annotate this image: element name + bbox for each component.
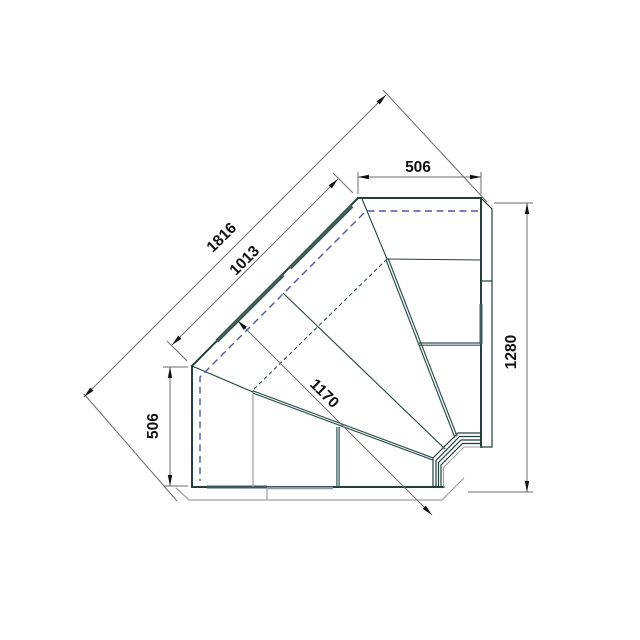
arrowhead	[525, 481, 529, 492]
fan-line-left	[192, 366, 253, 392]
fan-line-bisector	[283, 293, 445, 449]
extension-line	[333, 173, 353, 193]
right-end-panel	[481, 198, 492, 447]
extension-line	[167, 341, 187, 361]
dim-label-top-width: 506	[405, 159, 431, 176]
shelf-line-horizontal	[387, 259, 481, 260]
arrowhead	[470, 175, 481, 179]
internal-shelf-lines	[192, 199, 481, 487]
technical-drawing: 506 1280 506 1816	[0, 0, 640, 640]
dimension-top-width: 506	[358, 159, 481, 194]
arrowhead	[168, 367, 172, 378]
dim-label-front-diagonal: 1013	[227, 242, 264, 279]
dimension-left-depth: 506	[145, 367, 188, 486]
dim-label-overall-diagonal: 1816	[204, 219, 241, 256]
shelf-line-diagonal-hidden	[253, 259, 387, 390]
deck-front-double-lines	[253, 258, 481, 487]
corner-bundle-outer	[444, 447, 482, 487]
dim-label-left-depth: 506	[145, 413, 162, 439]
corner-front-bundle	[433, 433, 481, 487]
dimension-right-depth: 1280	[468, 203, 533, 492]
arrowhead	[168, 475, 172, 486]
extension-line	[383, 90, 487, 202]
dim-label-corner-depth: 1170	[306, 376, 342, 412]
dim-label-right-depth: 1280	[503, 335, 520, 369]
dimension-line	[84, 95, 386, 397]
end-panel-outline	[481, 198, 492, 447]
drawing-canvas: 506 1280 506 1816	[0, 0, 640, 640]
fan-line-top	[362, 199, 387, 259]
arrowhead	[525, 203, 529, 214]
arrowhead	[358, 175, 369, 179]
extension-line	[84, 394, 177, 501]
